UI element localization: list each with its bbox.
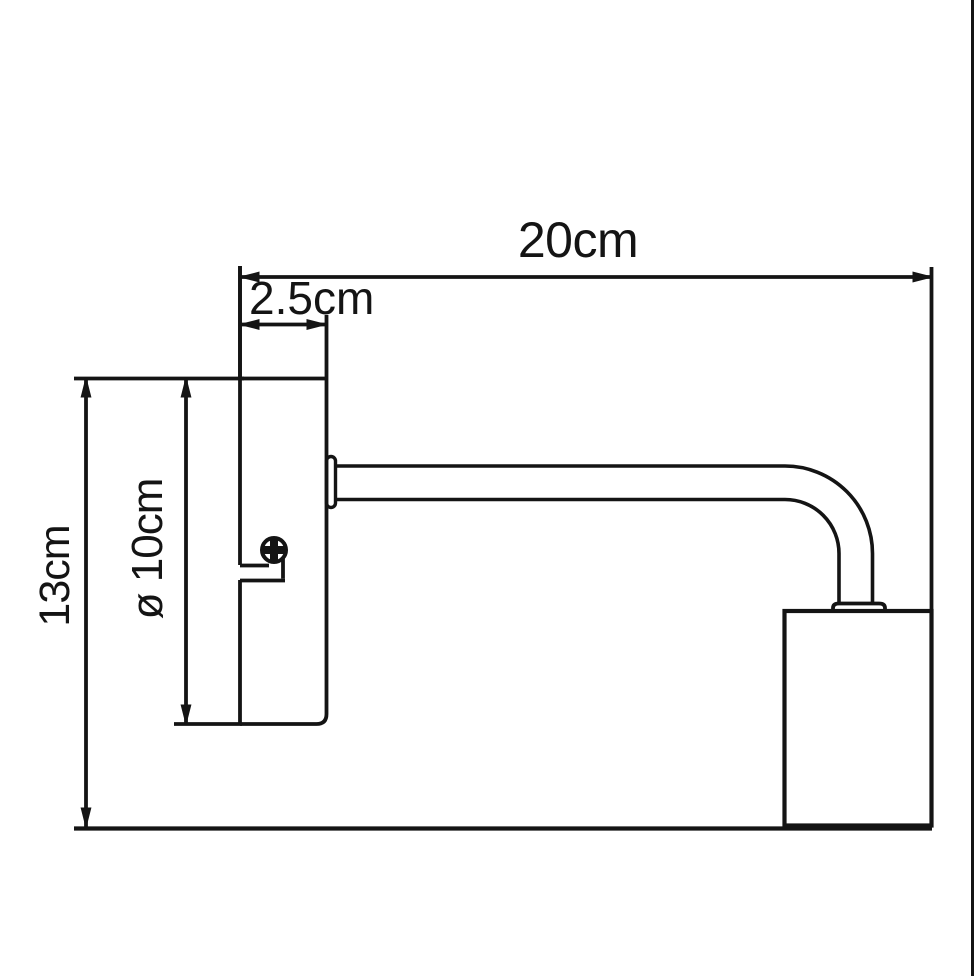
svg-text:ø 10cm: ø 10cm bbox=[123, 479, 172, 620]
svg-text:2.5cm: 2.5cm bbox=[249, 272, 374, 324]
svg-text:20cm: 20cm bbox=[518, 212, 638, 268]
svg-text:13cm: 13cm bbox=[31, 525, 79, 626]
